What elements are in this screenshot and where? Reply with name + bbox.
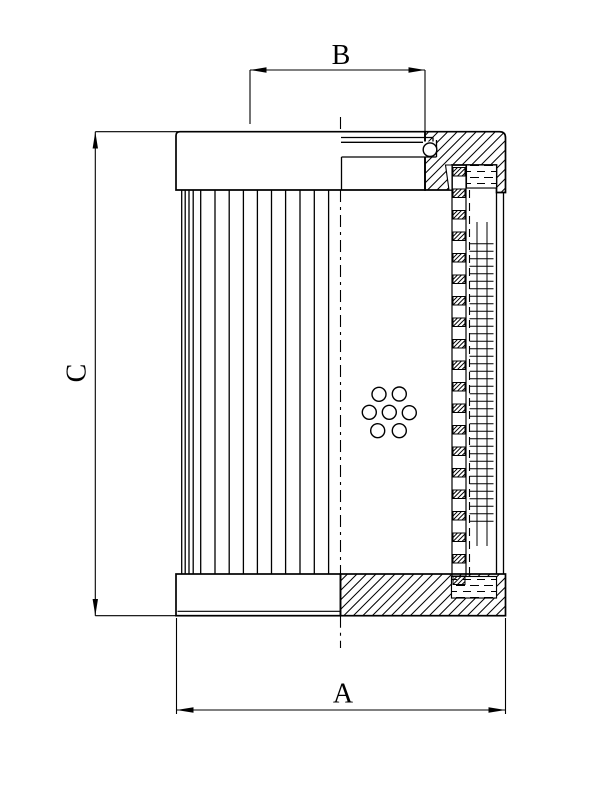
perforation-hole bbox=[392, 424, 406, 438]
pleated-media bbox=[182, 190, 329, 573]
perforation-hole bbox=[402, 406, 416, 420]
dimension-b: B bbox=[250, 40, 425, 131]
outer-wrap bbox=[497, 193, 504, 575]
dimension-c: C bbox=[62, 132, 179, 616]
filter-element-technical-drawing: B C A bbox=[0, 0, 612, 792]
top-end-cap-left bbox=[176, 132, 425, 190]
perforation-holes bbox=[362, 387, 416, 438]
dim-c-label: C bbox=[62, 364, 93, 383]
dim-c-arrow-up-icon bbox=[93, 132, 98, 149]
dim-a-label: A bbox=[333, 679, 354, 710]
perforation-hole bbox=[362, 405, 376, 419]
bottom-end-cap bbox=[176, 574, 506, 616]
perforation-hole bbox=[371, 424, 385, 438]
dim-c-arrow-down-icon bbox=[93, 599, 98, 616]
dim-b-arrow-right-icon bbox=[409, 67, 426, 72]
o-ring bbox=[423, 143, 437, 157]
perforation-hole bbox=[382, 405, 396, 419]
dim-a-arrow-left-icon bbox=[177, 707, 194, 713]
support-mesh bbox=[470, 222, 494, 546]
dim-b-label: B bbox=[332, 40, 351, 71]
bottom-core-squares-overlay bbox=[452, 577, 466, 593]
perforation-hole bbox=[372, 387, 386, 401]
dimension-a: A bbox=[177, 618, 506, 714]
drawing-canvas: B C A bbox=[0, 0, 612, 792]
dim-a-arrow-right-icon bbox=[489, 707, 506, 713]
bottom-end-cap-left bbox=[176, 574, 341, 616]
perforated-core-tube bbox=[452, 165, 466, 598]
dim-b-arrow-left-icon bbox=[250, 67, 267, 72]
core-tube-perforation-squares bbox=[452, 167, 466, 590]
top-seal-pocket-overlay-fill bbox=[467, 165, 497, 188]
mesh-rows bbox=[470, 240, 494, 525]
perforation-hole bbox=[392, 387, 406, 401]
